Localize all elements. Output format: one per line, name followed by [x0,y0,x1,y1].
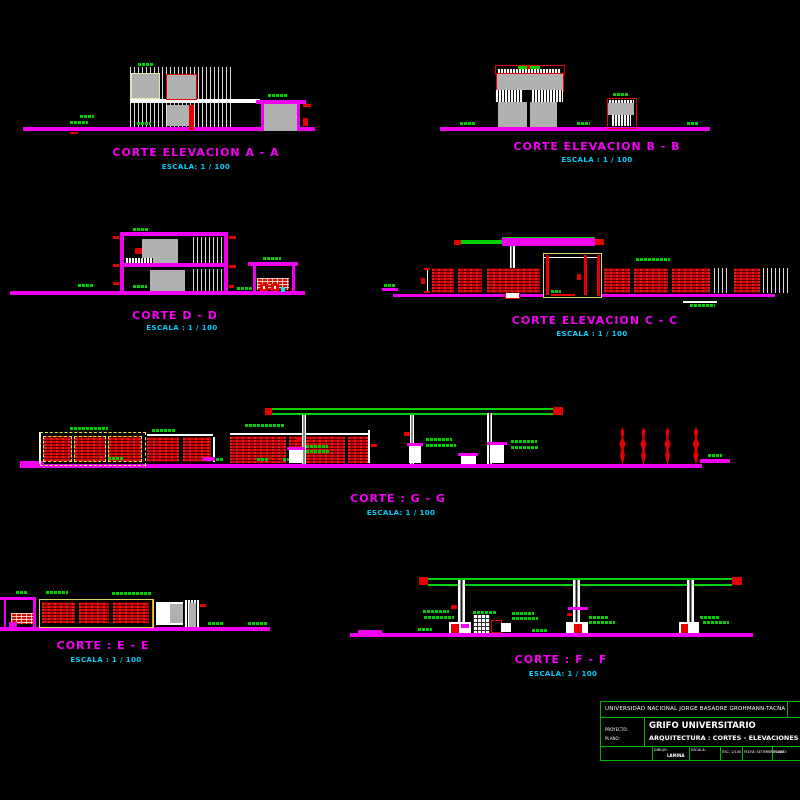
ground-step [700,459,730,463]
fuel-dispenser [473,615,490,635]
door-element [189,105,194,130]
level-label [248,622,268,625]
column [189,603,196,627]
level-label [306,445,328,448]
ground-line [350,633,753,637]
dim-tick [424,268,430,270]
level-label [511,446,539,449]
fixture [135,248,142,254]
level-label [700,616,720,619]
drawing-scale: ESCALA : 1 / 100 [146,324,217,332]
kiosk-hatch [611,115,631,126]
divider [689,747,690,760]
window-panel [131,73,160,99]
drawing-title: CORTE : F - F [515,653,608,666]
shape [274,286,276,289]
level-tick [113,236,119,239]
cell-dibujo: DIBUJO: [654,748,668,752]
project-label: PROYECTO: [605,727,628,732]
door-post [546,255,549,295]
level-label [133,228,149,231]
canopy-column [687,580,694,627]
wall-panel [432,268,454,293]
level-label [70,427,108,430]
drawing-corte-d-d: CORTE D - D ESCALA : 1 / 100 [0,225,320,337]
drawing-scale: ESCALA: 1 / 100 [162,163,231,171]
window-panel [167,105,191,126]
plan-label: PLANO: [605,736,620,741]
level-tick [296,437,302,441]
wall-panel [79,602,109,623]
level-label [577,122,590,125]
level-label [426,438,452,441]
level-label [512,612,534,615]
project-name: GRIFO UNIVERSITARIO [649,721,756,731]
cell-esc-value: ESC: 1/100 [722,750,741,754]
kiosk-post [4,600,6,627]
beam-arrow [732,577,742,585]
fixture [203,457,215,461]
level-label [687,122,699,125]
divider [601,717,800,718]
drawing-scale: ESCALA: 1 / 100 [529,670,598,678]
level-tick [113,264,119,267]
window-gap [523,90,531,102]
door-post [584,255,587,295]
drawing-title: CORTE : E - E [57,639,150,652]
cad-sheet: CORTE ELEVACION A - A ESCALA: 1 / 100 CO… [0,0,800,800]
beam-end-cap [454,240,461,245]
level-tick [404,432,410,436]
wall-panel [487,268,540,293]
level-label [589,621,615,624]
beam-arrow [595,239,604,245]
dim-line [427,268,428,293]
cell-lamina: LAMINA [667,753,685,758]
tree [638,427,649,465]
level-tick [113,282,119,285]
drawing-title: CORTE ELEVACION A - A [112,146,279,159]
level-label [216,458,224,461]
level-tick [303,118,308,126]
level-tick [229,285,234,288]
title-block: UNIVERSIDAD NACIONAL JORGE BASADRE GROHM… [600,701,800,761]
level-label [152,429,176,432]
wall-panel [43,436,72,462]
door-sill [551,294,575,296]
beam-arrow [553,407,563,415]
canopy-column [573,580,580,627]
fuel-dispenser [490,445,504,463]
base-detail [451,624,459,633]
wall-panel [74,436,106,462]
drawing-scale: ESCALA : 1 / 100 [556,330,627,338]
wall-panel [113,602,149,623]
railing-hatch [125,258,153,263]
lower-wall [150,270,185,291]
level-label [460,122,476,125]
level-tick [567,613,572,616]
fence-hatch [763,268,788,293]
level-tick [451,605,457,609]
wall-panel [634,268,668,293]
level-label [426,444,456,447]
level-label [532,629,548,632]
drawing-corte-elevacion-a-a: CORTE ELEVACION A - A ESCALA: 1 / 100 [0,55,330,180]
drawing-title: CORTE ELEVACION C - C [512,314,679,327]
shape [263,286,265,289]
level-label [636,258,670,261]
canopy-beam-green [461,240,502,244]
fixture [271,284,279,291]
drawing-scale: ESCALA : 1 / 100 [561,156,632,164]
beam-end-cap [265,408,272,415]
level-label [138,63,154,66]
level-label [306,450,330,453]
level-label [613,93,628,96]
tree [662,427,673,465]
canopy-beam-magenta [502,238,595,246]
kiosk-post [253,266,256,292]
wall-panel [672,268,710,293]
level-label [257,458,269,461]
edge-line [152,600,153,627]
level-label [133,285,147,288]
dim-text [421,278,425,284]
door-post [597,255,600,296]
tree [617,427,628,465]
level-label [263,257,281,260]
wall-panel [458,268,482,293]
walk-line [683,301,717,303]
window-panel [166,74,197,100]
kiosk-body [261,104,300,131]
level-label [424,616,454,619]
wall-panel [604,268,630,293]
level-label [418,628,432,631]
fence-rail [147,434,213,436]
lower-hatch [193,269,223,291]
level-tick [229,236,236,239]
base-detail [681,624,688,633]
cell-plano: PLANO: [774,750,787,754]
level-label [512,617,538,620]
dim-tick [424,291,430,293]
fuel-dispenser [289,450,303,463]
kiosk-post [292,266,295,292]
kiosk-wall [608,103,634,115]
level-label [473,611,497,614]
drawing-title: CORTE : G - G [350,492,446,505]
pump-body [501,623,511,632]
floor-slab [120,263,228,267]
ground-step [382,288,398,291]
drawing-scale: ESCALA: 1 / 100 [367,509,436,517]
level-label [46,591,68,594]
level-label [112,592,152,595]
dim-text [577,274,581,280]
lower-wall [498,102,527,127]
drawing-corte-e-e: CORTE : E - E ESCALA : 1 / 100 [0,585,310,685]
fuel-dispenser [461,456,476,464]
divider [787,702,788,717]
university-name: UNIVERSIDAD NACIONAL JORGE BASADRE GROHM… [605,706,785,712]
drawing-corte-g-g: CORTE : G - G ESCALA: 1 / 100 [0,400,800,522]
plan-name: ARQUITECTURA : CORTES - ELEVACIONES [649,734,798,742]
wall-panel [348,436,368,463]
wall-panel [147,437,179,462]
level-label [384,284,396,287]
level-label [108,457,124,460]
fence-rail [230,433,370,435]
fixture [281,287,285,292]
fuel-dispenser [409,446,421,463]
fixture [260,284,268,291]
drawing-corte-elevacion-c-c: CORTE ELEVACION C - C ESCALA : 1 / 100 [380,230,800,342]
divider [644,718,645,746]
divider [742,747,743,760]
level-tick [200,604,206,607]
level-tick [303,104,311,107]
level-tick [70,132,78,134]
level-label [551,290,561,293]
canopy-column [458,580,465,627]
level-label [690,304,715,307]
level-label [423,610,449,613]
level-label [16,591,28,594]
drawing-title: CORTE D - D [132,309,218,322]
level-label [511,440,537,443]
fence-hatch [714,268,730,293]
level-label [708,454,722,457]
level-label [80,115,94,118]
level-tick [229,265,236,268]
base-detail [461,624,469,628]
level-tick [371,444,377,447]
level-label [703,621,729,624]
beam-arrow [419,577,428,585]
level-label [268,94,288,97]
door-lintel [544,257,599,258]
level-label [78,284,94,287]
kiosk-post [33,600,36,627]
ground-line [10,291,305,295]
canopy-beam-top [272,408,553,410]
divider [720,747,721,760]
fixture [9,622,17,627]
lower-wall [530,102,557,127]
cell-escala: ESCALA: [691,748,706,752]
base-detail [574,624,582,633]
drawing-title: CORTE ELEVACION B - B [513,140,680,153]
divider [652,747,653,760]
level-label [70,121,88,124]
wall-panel [734,268,760,293]
roof-slab [120,232,228,236]
wall-panel [42,602,75,623]
drawing-corte-f-f: CORTE : F - F ESCALA: 1 / 100 [340,570,800,685]
level-label [245,424,285,427]
level-label [589,616,609,619]
level-label [208,622,224,625]
fence-post [368,430,370,463]
ground-line [440,127,710,131]
drawing-corte-elevacion-b-b: CORTE ELEVACION B - B ESCALA : 1 / 100 [430,60,800,180]
level-label-magenta [568,607,588,610]
drawing-scale: ESCALA : 1 / 100 [70,656,141,664]
divider [601,746,800,747]
upper-hatch [193,237,223,263]
window-panel [170,604,183,623]
level-label [137,122,151,125]
level-label [237,287,252,290]
